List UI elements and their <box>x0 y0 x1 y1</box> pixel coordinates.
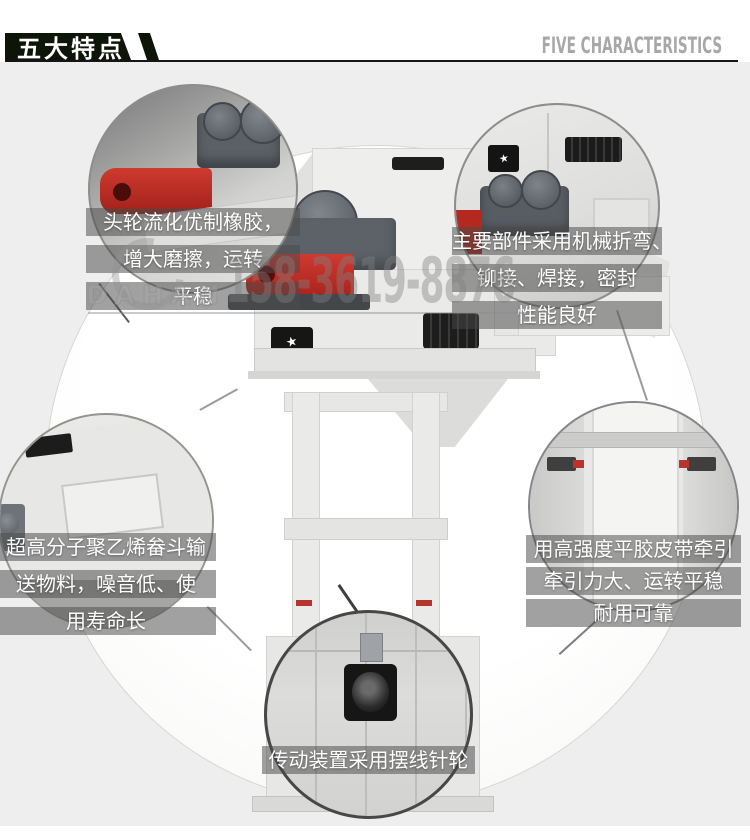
promo-page: 五大特点 FIVE CHARACTERISTICS ★ <box>0 0 750 840</box>
photo-top-rail <box>530 432 737 448</box>
caption-line: 头轮流化优制橡胶， <box>86 208 300 236</box>
caption-line: 耐用可靠 <box>526 599 741 627</box>
caption-line: 性能良好 <box>452 301 662 329</box>
machine-clamp-left <box>296 600 312 606</box>
callout-head-wheel: 头轮流化优制橡胶， 增大磨擦，运转 平稳 <box>88 84 298 294</box>
caption-line: 主要部件采用机械折弯、 <box>452 227 662 255</box>
machine-top-handle <box>392 157 444 170</box>
callout-caption: 传动装置采用摆线针轮 <box>262 746 475 783</box>
caption-line: 用寿命长 <box>0 607 216 635</box>
photo-clamp-pin <box>679 460 689 468</box>
drive-photo <box>264 610 473 819</box>
photo-star-plate: ★ <box>488 145 518 171</box>
photo-clamp-pin <box>573 460 583 468</box>
caption-line: 增大磨擦，运转 <box>86 245 300 273</box>
photo-clamp <box>547 457 576 471</box>
section-banner: 五大特点 <box>5 33 131 60</box>
section-title-en: FIVE CHARACTERISTICS <box>541 34 722 59</box>
caption-line: 传动装置采用摆线针轮 <box>262 746 475 774</box>
callout-caption: 主要部件采用机械折弯、 铆接、焊接，密封 性能良好 <box>452 227 662 338</box>
section-title-cn: 五大特点 <box>5 29 125 64</box>
callout-belt: 用高强度平胶皮带牵引 牵引力大、运转平稳 耐用可靠 <box>528 401 739 612</box>
photo-clamp <box>687 457 716 471</box>
photo-gear-housing <box>488 174 522 208</box>
callout-caption: 超高分子聚乙烯畚斗输 送物料，噪音低、使 用寿命长 <box>0 533 216 644</box>
callout-drive: 传动装置采用摆线针轮 <box>264 610 473 819</box>
caption-line: 用高强度平胶皮带牵引 <box>526 535 741 563</box>
caption-line: 送物料，噪音低、使 <box>0 570 216 598</box>
photo-drive-hub <box>352 672 389 713</box>
machine-mid-brace <box>284 518 448 540</box>
callout-bucket: 超高分子聚乙烯畚斗输 送物料，噪音低、使 用寿命长 <box>0 413 214 629</box>
photo-gear-housing <box>521 170 561 210</box>
photo-bracket <box>360 633 382 661</box>
caption-line: 铆接、焊接，密封 <box>452 264 662 292</box>
caption-line: 平稳 <box>86 282 300 310</box>
photo-gear-housing <box>0 513 19 534</box>
photo-vent-grille <box>565 137 622 161</box>
caption-line: 超高分子聚乙烯畚斗输 <box>0 533 216 561</box>
caption-line: 牵引力大、运转平稳 <box>526 567 741 595</box>
star-logo-icon: ★ <box>497 152 509 165</box>
machine-platform <box>254 348 536 372</box>
machine-platform-lip <box>248 371 540 379</box>
photo-gear-housing <box>240 98 285 143</box>
callout-caption: 用高强度平胶皮带牵引 牵引力大、运转平稳 耐用可靠 <box>526 535 741 631</box>
photo-inspection-door <box>61 473 164 539</box>
machine-clamp-right <box>416 600 432 606</box>
callout-caption: 头轮流化优制橡胶， 增大磨擦，运转 平稳 <box>86 208 300 319</box>
header-divider <box>5 60 738 62</box>
callout-fabrication: ★ 主要部件采用机械折弯、 铆接、焊接，密封 性能良好 <box>454 103 660 309</box>
